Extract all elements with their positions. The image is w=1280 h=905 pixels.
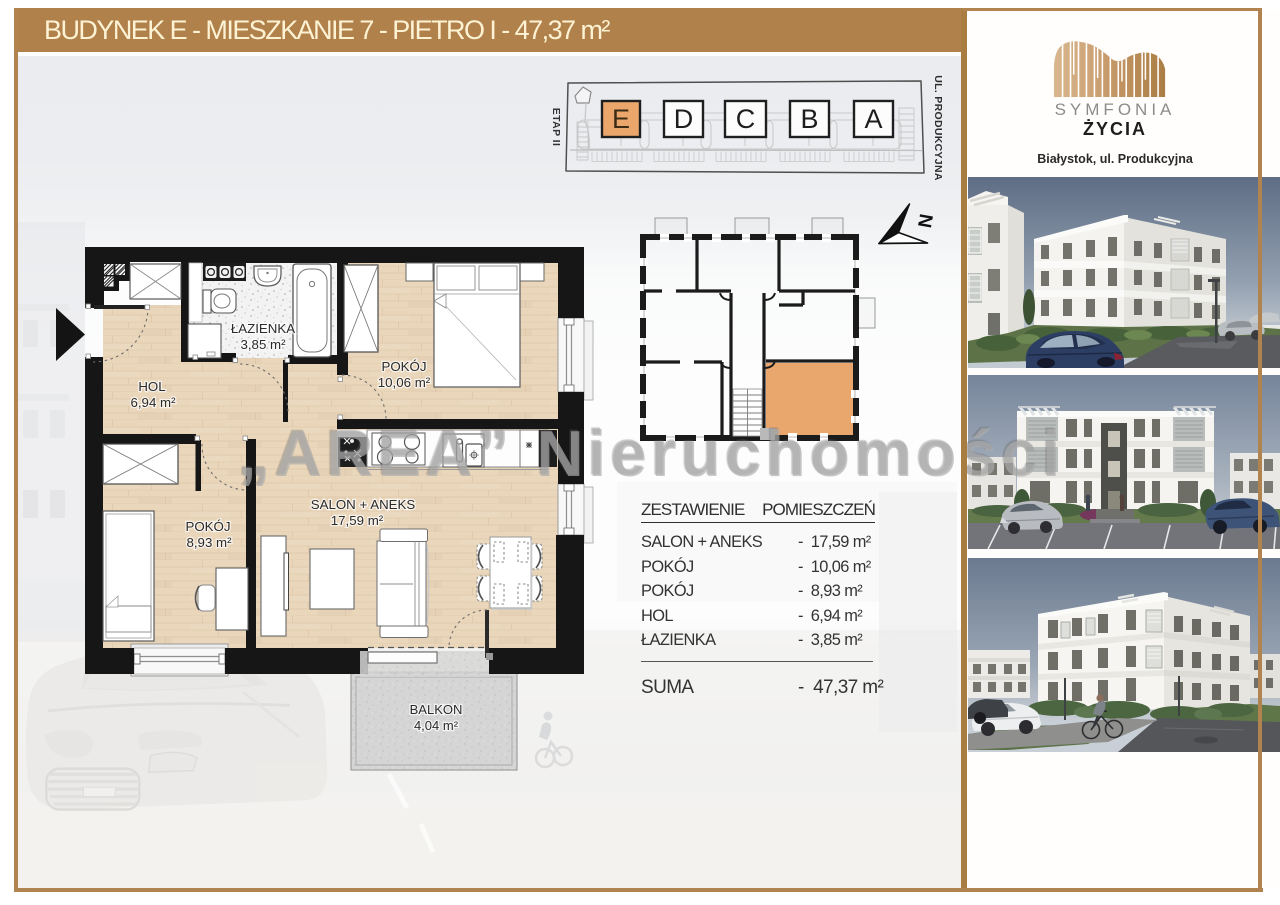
svg-text:E: E (612, 104, 630, 134)
svg-text:D: D (674, 104, 694, 134)
svg-text:ETAP II: ETAP II (550, 108, 562, 147)
svg-text:4,04 m²: 4,04 m² (414, 718, 459, 733)
svg-text:BALKON: BALKON (410, 702, 463, 717)
svg-text:10,06 m²: 10,06 m² (378, 375, 431, 390)
svg-text:B: B (800, 104, 818, 134)
svg-text:HOL: HOL (138, 379, 165, 394)
svg-text:6,94 m²: 6,94 m² (130, 395, 176, 410)
svg-text:17,59 m²: 17,59 m² (331, 513, 384, 528)
svg-text:N: N (913, 212, 936, 229)
svg-text:POKÓJ: POKÓJ (381, 359, 426, 374)
svg-text:8,93 m²: 8,93 m² (186, 535, 232, 550)
svg-text:SALON + ANEKS: SALON + ANEKS (311, 497, 416, 512)
svg-text:3,85 m²: 3,85 m² (240, 337, 286, 352)
svg-text:ŁAZIENKA: ŁAZIENKA (231, 321, 295, 336)
svg-text:A: A (864, 104, 882, 134)
svg-text:POKÓJ: POKÓJ (185, 519, 230, 534)
svg-text:C: C (736, 104, 756, 134)
svg-text:UL. PRODUKCYJNA: UL. PRODUKCYJNA (932, 75, 944, 181)
